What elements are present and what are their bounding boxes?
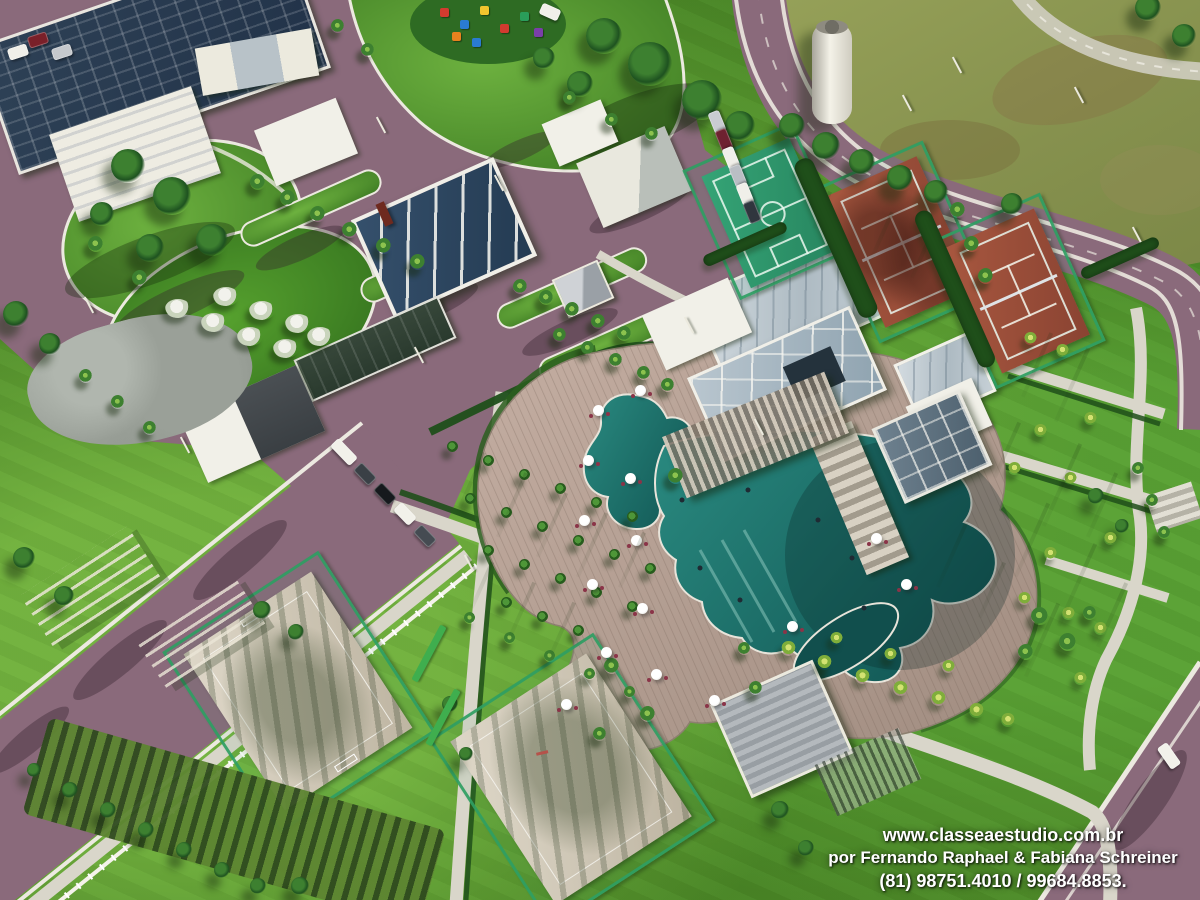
car <box>538 2 561 21</box>
pool-umbrella <box>787 621 798 632</box>
palm-tree <box>250 174 266 190</box>
tree <box>196 224 228 256</box>
car <box>413 524 437 548</box>
tree <box>90 202 114 226</box>
tree <box>138 822 154 838</box>
palm-tree <box>1158 526 1171 539</box>
banana-plant <box>1104 532 1117 545</box>
orchard-tree <box>501 597 512 608</box>
tree <box>533 47 555 69</box>
car <box>742 200 761 225</box>
palm-tree <box>553 328 567 342</box>
flower-bush <box>201 313 227 332</box>
light-pole <box>1074 87 1084 104</box>
light-pole <box>902 95 912 112</box>
light-pole <box>84 297 94 314</box>
palm-tree <box>668 468 684 484</box>
pool-chair <box>592 522 596 526</box>
tree <box>27 763 41 777</box>
tree <box>136 234 164 262</box>
pool-chair <box>621 482 625 486</box>
pool-umbrella <box>901 579 912 590</box>
hedge-row <box>792 155 880 320</box>
palm-tree <box>79 369 93 383</box>
palm-tree <box>738 642 751 655</box>
palm-tree <box>310 206 326 222</box>
palm-tree <box>749 681 763 695</box>
palm-tree <box>637 366 651 380</box>
palm-tree <box>464 612 476 624</box>
palm-tree <box>591 314 606 329</box>
playground-equipment <box>440 8 449 17</box>
orchard-tree <box>573 625 584 636</box>
pool-umbrella <box>709 695 720 706</box>
palm-tree <box>593 727 607 741</box>
tree-shadow <box>870 211 894 258</box>
palm-tree <box>617 326 632 341</box>
palm-tree <box>513 279 528 294</box>
car <box>27 31 50 49</box>
tree-shadow <box>1054 348 1090 423</box>
light-pole <box>754 419 764 436</box>
tree <box>924 180 948 204</box>
playground-equipment <box>480 6 489 15</box>
flower-bush <box>307 327 333 346</box>
pool-umbrella <box>625 473 636 484</box>
banana-plant <box>781 641 796 656</box>
tree <box>291 877 309 895</box>
car <box>393 502 417 526</box>
palm-tree <box>143 421 157 435</box>
pool-umbrella <box>651 669 662 680</box>
tree <box>176 842 192 858</box>
pool-chair <box>597 656 601 660</box>
pool-chair <box>722 702 726 706</box>
banana-plant <box>893 681 908 696</box>
tree <box>459 747 473 761</box>
flower-bush <box>285 314 311 333</box>
banana-plant <box>969 703 984 718</box>
light-pole <box>464 555 474 572</box>
orchard-tree <box>573 535 584 546</box>
light-pole <box>180 437 190 454</box>
light-pole <box>414 347 424 364</box>
banana-plant <box>1084 412 1097 425</box>
orchard-tree <box>447 441 458 452</box>
pool-umbrella <box>561 699 572 710</box>
green-fence <box>411 624 446 682</box>
palm-tree <box>132 270 148 286</box>
palm-tree <box>111 395 125 409</box>
palm-tree <box>342 222 358 238</box>
hedge-row <box>701 220 788 268</box>
tree <box>1001 193 1023 215</box>
pool-chair <box>647 678 651 682</box>
light-pole <box>684 317 694 334</box>
palm-tree <box>604 658 620 674</box>
tree <box>1115 519 1129 533</box>
playground-equipment <box>460 20 469 29</box>
orchard-tree <box>519 559 530 570</box>
banana-plant <box>884 648 897 661</box>
light-pole <box>376 117 386 134</box>
palm-tree <box>978 268 994 284</box>
palm-tree <box>645 127 659 141</box>
tree <box>288 624 304 640</box>
orchard-tree <box>483 545 494 556</box>
palm-tree <box>605 113 619 127</box>
tree <box>62 782 78 798</box>
palm-tree <box>609 353 623 367</box>
hedge-row <box>912 208 998 371</box>
palm-tree <box>950 202 966 218</box>
light-pole <box>494 175 504 192</box>
orchard-tree <box>483 455 494 466</box>
watermark-credit: por Fernando Raphael & Fabiana Schreiner <box>812 847 1194 870</box>
palm-tree <box>964 236 980 252</box>
tree <box>39 333 61 355</box>
tree <box>812 132 840 160</box>
pool-chair <box>574 706 578 710</box>
tree <box>628 42 672 86</box>
tree <box>725 111 755 141</box>
playground-equipment <box>534 28 543 37</box>
pool-chair <box>664 676 668 680</box>
tree <box>586 18 622 54</box>
car <box>373 482 397 506</box>
pool-chair <box>638 480 642 484</box>
tree <box>153 177 191 215</box>
palm-tree <box>563 91 577 105</box>
tree <box>54 586 74 606</box>
pool-chair <box>557 708 561 712</box>
flower-bush <box>249 301 275 320</box>
light-pole <box>952 57 962 74</box>
car <box>1157 742 1182 770</box>
pool-chair <box>783 630 787 634</box>
palm-tree <box>1132 462 1145 475</box>
tree <box>253 601 271 619</box>
banana-plant <box>1074 672 1087 685</box>
pool-chair <box>627 544 631 548</box>
pool-chair <box>633 612 637 616</box>
tree-shadow <box>508 582 536 638</box>
tree <box>779 113 805 139</box>
pool-umbrella <box>587 579 598 590</box>
palm-tree <box>361 43 375 57</box>
banana-plant <box>855 669 870 684</box>
pool-chair <box>600 586 604 590</box>
tree <box>1172 24 1196 48</box>
pool-umbrella <box>583 455 594 466</box>
tree-shadow <box>1014 503 1050 578</box>
pool-chair <box>579 464 583 468</box>
playground-equipment <box>500 24 509 33</box>
banana-plant <box>942 660 955 673</box>
orchard-tree <box>609 549 620 560</box>
banana-plant <box>1034 424 1047 437</box>
orchard-tree <box>555 573 566 584</box>
tree <box>771 801 789 819</box>
pool-umbrella <box>635 385 646 396</box>
pool-chair <box>644 542 648 546</box>
pool-umbrella <box>871 533 882 544</box>
banana-plant <box>830 632 843 645</box>
banana-plant <box>1001 713 1015 727</box>
tree <box>111 149 145 183</box>
hedge-row <box>1079 235 1161 280</box>
pool-chair <box>650 610 654 614</box>
orchard-tree <box>627 511 638 522</box>
pool-chair <box>575 524 579 528</box>
palm-tree <box>331 19 345 33</box>
tree <box>3 301 29 327</box>
car <box>7 43 30 61</box>
pool-chair <box>596 462 600 466</box>
tree-shadow <box>470 561 494 608</box>
palm-tree <box>584 668 596 680</box>
orchard-tree <box>645 563 656 574</box>
palm-tree <box>376 238 392 254</box>
orchard-tree <box>537 611 548 622</box>
green-fence <box>425 688 460 746</box>
watermark-website: www.classeaestudio.com.br <box>812 824 1194 848</box>
pool-chair <box>705 704 709 708</box>
pool-chair <box>631 394 635 398</box>
pool-chair <box>867 542 871 546</box>
flower-bush <box>165 299 191 318</box>
pool-chair <box>914 586 918 590</box>
aerial-photo-resort: www.classeaestudio.com.br por Fernando R… <box>0 0 1200 900</box>
pool-umbrella <box>637 603 648 614</box>
palm-tree <box>1146 494 1159 507</box>
tree <box>100 802 116 818</box>
pool-chair <box>614 654 618 658</box>
banana-plant <box>817 655 832 670</box>
tree <box>849 149 875 175</box>
car <box>353 462 377 486</box>
palm-tree <box>1059 633 1077 651</box>
tree-shadow <box>496 472 528 538</box>
banana-plant <box>1008 462 1021 475</box>
pool-chair <box>583 588 587 592</box>
playground-equipment <box>452 32 461 41</box>
pool-chair <box>606 412 610 416</box>
orchard-tree <box>591 497 602 508</box>
palm-tree <box>624 686 636 698</box>
car <box>51 43 74 61</box>
palm-tree <box>88 236 104 252</box>
palm-tree <box>640 706 656 722</box>
watermark-phone: (81) 98751.4010 / 99684.8853. <box>812 870 1194 894</box>
palm-tree <box>581 341 595 355</box>
tree <box>887 165 913 191</box>
car <box>330 438 358 466</box>
playground-equipment <box>472 38 481 47</box>
photographer-watermark: www.classeaestudio.com.br por Fernando R… <box>812 824 1194 894</box>
pool-chair <box>800 628 804 632</box>
banana-plant <box>1044 547 1057 560</box>
palm-tree <box>661 378 675 392</box>
banana-plant <box>1056 344 1069 357</box>
banana-plant <box>1024 332 1037 345</box>
tree <box>250 878 266 894</box>
tree-shadow <box>548 602 576 658</box>
palm-tree <box>410 254 426 270</box>
tree-shadow <box>1086 472 1118 538</box>
palm-tree <box>539 290 554 305</box>
tree <box>13 547 35 569</box>
pool-chair <box>897 588 901 592</box>
palm-tree <box>280 190 296 206</box>
pool-chair <box>589 414 593 418</box>
tree-shadow <box>978 562 1006 618</box>
pool-umbrella <box>579 515 590 526</box>
tree <box>214 862 230 878</box>
flower-bush <box>273 339 299 358</box>
playground-equipment <box>520 12 529 21</box>
pool-umbrella <box>601 647 612 658</box>
tree-shadow <box>1042 443 1082 527</box>
palm-tree <box>1083 606 1097 620</box>
tree-shadow <box>936 522 968 588</box>
vegetation-and-props <box>0 0 1200 900</box>
tree <box>1135 0 1161 21</box>
banana-plant <box>1018 592 1031 605</box>
flower-bush <box>213 287 239 306</box>
tree-shadow <box>1096 582 1128 648</box>
palm-tree <box>565 302 580 317</box>
banana-plant <box>931 691 946 706</box>
flower-bush <box>237 327 263 346</box>
pool-chair <box>648 392 652 396</box>
pool-chair <box>884 540 888 544</box>
pool-umbrella <box>593 405 604 416</box>
